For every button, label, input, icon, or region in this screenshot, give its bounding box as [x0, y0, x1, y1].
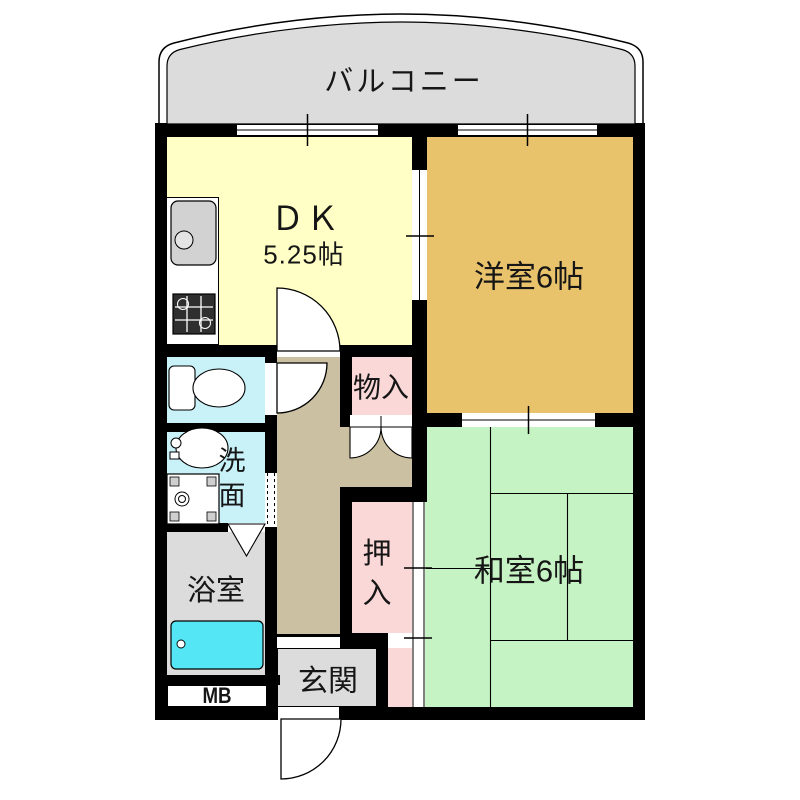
wall-storage-left-foot: [340, 415, 350, 427]
dk-size-label: 5.25帖: [263, 235, 345, 272]
wall-left: [155, 123, 167, 720]
floorplan: バルコニー ＤＫ 5.25帖 洋室6帖 和室6帖 物入 押入 洗面 浴室 玄関 …: [0, 0, 800, 800]
wall-dk-bottom-left: [165, 345, 277, 357]
entrance-step: [277, 637, 340, 648]
closet-room-lower: [388, 648, 412, 707]
kitchen-counter: [166, 197, 219, 345]
hallway-extension: [340, 427, 412, 487]
wall-western-japanese-left: [427, 413, 462, 427]
closet-label: 押入: [361, 534, 393, 614]
wall-right: [633, 123, 645, 720]
doorway-bath-fold: [228, 523, 265, 532]
wall-dk-western-bottom: [412, 300, 427, 502]
toilet-room: [167, 357, 265, 423]
wall-toilet-right-2: [265, 415, 277, 473]
wall-closet-top: [340, 487, 426, 502]
japanese-room-label: 和室6帖: [474, 546, 584, 591]
opening-dk-western: [412, 170, 427, 300]
wall-western-japanese-right: [595, 413, 633, 427]
entrance-door-arc: [281, 719, 341, 779]
opening-washroom-dashed: [265, 473, 277, 527]
washroom-label: 洗面: [217, 444, 247, 514]
doorway-storage: [350, 415, 412, 427]
meter-box-label: MB: [202, 683, 231, 709]
hallway: [277, 357, 340, 636]
window-balcony-1: [237, 125, 378, 135]
fusuma-closet: [412, 502, 425, 707]
doorway-toilet: [265, 363, 277, 415]
doorway-dk: [277, 345, 340, 357]
wall-entrance-right: [377, 648, 388, 707]
bathroom-label: 浴室: [187, 567, 245, 609]
wall-washroom-bath: [165, 523, 228, 532]
storage-label: 物入: [353, 366, 409, 406]
opening-western-japanese: [462, 415, 595, 425]
wall-dk-western-top: [412, 137, 427, 170]
wall-closet-entrance: [340, 633, 388, 648]
doorway-entrance: [278, 707, 339, 720]
wall-storage-left: [340, 345, 352, 415]
wall-closet-left: [340, 500, 352, 633]
entrance-label: 玄関: [298, 656, 358, 700]
washroom: [167, 432, 265, 523]
western-room-label: 洋室6帖: [474, 252, 584, 297]
dk-label: ＤＫ: [271, 192, 341, 240]
balcony-label: バルコニー: [324, 58, 483, 100]
window-balcony-2: [458, 125, 597, 135]
wall-toilet-washroom: [165, 423, 265, 432]
wall-toilet-right-1: [265, 345, 277, 363]
